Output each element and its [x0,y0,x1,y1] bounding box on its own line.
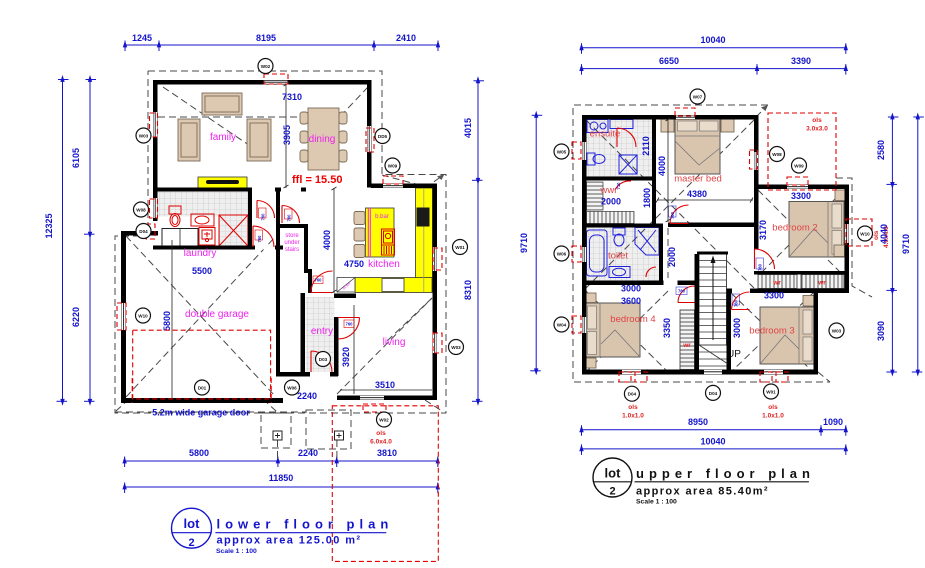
svg-text:2410: 2410 [396,33,416,43]
svg-text:760: 760 [758,263,763,271]
svg-text:W03: W03 [451,345,461,350]
svg-text:approx area 125.00 m²: approx area 125.00 m² [217,535,362,547]
svg-text:W08: W08 [772,152,782,157]
svg-text:entry: entry [311,326,333,337]
svg-text:3170: 3170 [758,220,768,240]
svg-text:ols: ols [628,404,638,411]
svg-text:6105: 6105 [71,148,81,168]
svg-text:760: 760 [261,213,266,221]
svg-text:wwr: wwr [600,185,618,196]
svg-text:laundry: laundry [184,248,217,259]
svg-text:stairs: stairs [285,247,299,253]
svg-text:4040: 4040 [879,224,889,244]
svg-text:D04: D04 [139,229,148,234]
svg-text:3090: 3090 [876,321,886,341]
svg-text:wr: wr [772,280,781,287]
svg-text:ols: ols [376,430,386,437]
svg-text:W07: W07 [693,95,703,100]
svg-text:760: 760 [287,214,292,222]
svg-text:under: under [284,240,299,246]
svg-text:5800: 5800 [189,448,209,458]
svg-text:3300: 3300 [764,291,784,301]
svg-text:ffl = 15.50: ffl = 15.50 [292,174,342,186]
svg-text:4000: 4000 [657,156,667,176]
svg-text:W03: W03 [832,329,842,334]
svg-text:5800: 5800 [162,311,172,331]
svg-text:lot: lot [605,466,622,481]
svg-text:ensuite: ensuite [590,129,621,140]
svg-text:W02: W02 [261,64,271,69]
svg-text:4750: 4750 [344,259,364,269]
svg-text:lot: lot [184,516,201,531]
svg-text:ols: ols [768,404,778,411]
svg-text:W01: W01 [766,390,776,395]
svg-text:D03: D03 [319,357,328,362]
svg-text:2240: 2240 [297,391,317,401]
svg-text:3.0x3.0: 3.0x3.0 [806,126,828,133]
svg-text:W10: W10 [860,232,870,237]
svg-text:2110: 2110 [641,136,651,156]
svg-text:760: 760 [315,278,323,283]
svg-text:8195: 8195 [256,33,276,43]
svg-text:3810: 3810 [377,448,397,458]
svg-text:6220: 6220 [71,307,81,327]
svg-text:W09: W09 [794,164,804,169]
svg-text:1800: 1800 [642,188,652,208]
svg-text:master bed: master bed [674,174,722,185]
svg-text:2: 2 [609,486,615,498]
svg-text:3510: 3510 [375,380,395,390]
svg-text:2000: 2000 [601,197,621,207]
svg-text:living: living [383,337,406,348]
svg-text:10040: 10040 [700,35,725,45]
svg-text:Scale 1 : 100: Scale 1 : 100 [636,499,677,506]
svg-text:W08: W08 [136,208,146,213]
svg-text:lower floor plan: lower floor plan [217,517,394,532]
svg-text:Scale 1 : 100: Scale 1 : 100 [216,548,257,555]
svg-text:3920: 3920 [341,347,351,367]
svg-text:7310: 7310 [282,92,302,102]
svg-text:5.2m wide garage door: 5.2m wide garage door [152,408,250,418]
svg-text:760: 760 [257,235,262,243]
svg-text:2580: 2580 [876,140,886,160]
svg-text:dining: dining [309,134,336,145]
svg-text:8310: 8310 [463,280,473,300]
svg-text:2: 2 [188,537,194,549]
svg-text:3600: 3600 [621,296,641,306]
svg-text:6.0x4.0: 6.0x4.0 [370,439,392,446]
svg-text:760: 760 [346,322,354,327]
svg-text:1245: 1245 [132,33,152,43]
svg-text:bedroom 4: bedroom 4 [610,314,655,325]
svg-text:D04: D04 [628,392,637,397]
svg-text:3300: 3300 [791,191,811,201]
svg-text:10040: 10040 [700,437,725,447]
svg-text:11850: 11850 [269,473,294,483]
svg-text:DD5: DD5 [378,134,388,139]
svg-text:D01: D01 [198,386,207,391]
svg-text:9710: 9710 [519,233,529,253]
svg-text:family: family [210,132,236,143]
svg-text:W10: W10 [138,314,148,319]
svg-text:760: 760 [678,289,686,294]
svg-text:upper floor plan: upper floor plan [636,466,815,481]
svg-text:bedroom 2: bedroom 2 [772,223,817,234]
svg-text:760: 760 [670,211,675,219]
svg-text:9710: 9710 [901,234,911,254]
svg-text:760: 760 [734,299,739,307]
svg-text:4015: 4015 [463,118,473,138]
svg-text:3905: 3905 [282,125,292,145]
svg-text:5500: 5500 [192,266,212,276]
svg-text:toilet: toilet [608,251,628,262]
svg-text:W03: W03 [139,134,149,139]
svg-text:D04: D04 [709,391,718,396]
svg-text:4380: 4380 [687,189,707,199]
svg-text:3000: 3000 [732,318,742,338]
svg-text:kitchen: kitchen [368,259,400,270]
svg-text:store: store [285,233,299,239]
svg-text:approx area 85.40m²: approx area 85.40m² [636,486,769,498]
svg-text:wr: wr [682,342,691,349]
svg-text:W06: W06 [287,386,297,391]
svg-text:ols: ols [812,117,822,124]
svg-text:double garage: double garage [185,309,249,320]
svg-text:6650: 6650 [659,56,679,66]
svg-text:1.0x1.0: 1.0x1.0 [762,413,784,420]
svg-text:3390: 3390 [791,56,811,66]
svg-text:3000: 3000 [621,284,641,294]
svg-text:bedroom 3: bedroom 3 [749,326,794,337]
svg-text:8950: 8950 [688,417,708,427]
svg-text:W01: W01 [455,245,465,250]
svg-text:W05: W05 [557,150,567,155]
svg-text:1090: 1090 [823,417,843,427]
svg-text:12325: 12325 [44,213,54,238]
svg-text:b.bar: b.bar [375,214,389,220]
svg-text:1.0x1.0: 1.0x1.0 [622,413,644,420]
svg-text:W09: W09 [388,164,398,169]
svg-text:3350: 3350 [662,318,672,338]
svg-text:W06: W06 [557,252,567,257]
svg-text:W04: W04 [557,323,567,328]
svg-text:4000: 4000 [322,230,332,250]
svg-text:wr: wr [817,280,826,287]
svg-text:W02: W02 [379,418,389,423]
